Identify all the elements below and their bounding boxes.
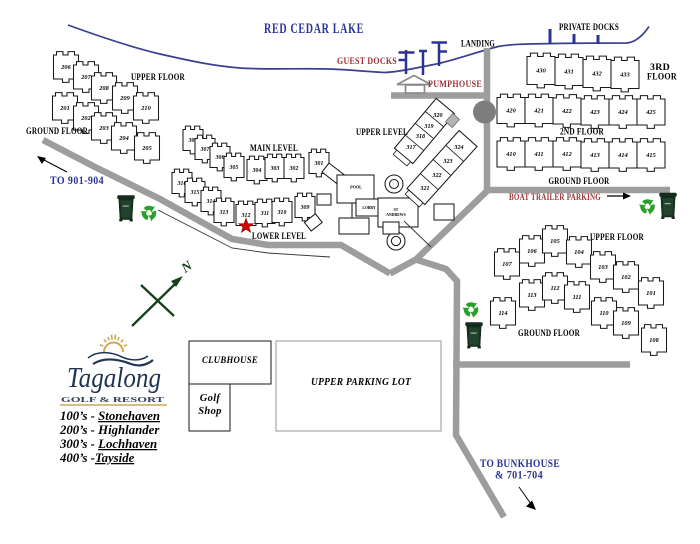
svg-text:GUEST DOCKS: GUEST DOCKS xyxy=(337,57,397,67)
svg-text:BOAT TRAILER PARKING: BOAT TRAILER PARKING xyxy=(509,193,601,203)
svg-text:GROUND FLOOR: GROUND FLOOR xyxy=(549,176,610,186)
svg-text:202: 202 xyxy=(80,115,90,122)
svg-text:317: 317 xyxy=(405,145,416,151)
svg-text:210: 210 xyxy=(140,105,151,112)
svg-text:301: 301 xyxy=(314,161,324,167)
svg-text:315: 315 xyxy=(190,190,200,196)
svg-text:103: 103 xyxy=(598,264,607,271)
svg-text:300’s - Lochhaven: 300’s - Lochhaven xyxy=(59,437,157,451)
svg-text:UPPER FLOOR: UPPER FLOOR xyxy=(131,72,185,82)
svg-text:2ND FLOOR: 2ND FLOOR xyxy=(560,127,604,137)
svg-text:425: 425 xyxy=(645,109,655,116)
svg-text:304: 304 xyxy=(252,168,262,174)
svg-text:UPPER FLOOR: UPPER FLOOR xyxy=(590,232,644,242)
svg-text:412: 412 xyxy=(561,151,571,158)
svg-text:323: 323 xyxy=(442,159,452,165)
svg-text:PRIVATE DOCKS: PRIVATE DOCKS xyxy=(559,23,619,33)
svg-text:422: 422 xyxy=(561,108,571,115)
svg-text:324: 324 xyxy=(453,145,463,151)
svg-text:ANDREWS: ANDREWS xyxy=(386,213,405,217)
svg-text:205: 205 xyxy=(141,145,151,152)
svg-text:POOL: POOL xyxy=(350,185,362,190)
svg-text:411: 411 xyxy=(533,151,543,158)
svg-text:431: 431 xyxy=(563,69,573,76)
svg-text:423: 423 xyxy=(589,109,599,116)
svg-text:RED CEDAR LAKE: RED CEDAR LAKE xyxy=(264,21,364,37)
svg-text:Golf: Golf xyxy=(200,393,222,404)
svg-text:321: 321 xyxy=(419,186,429,192)
svg-text:112: 112 xyxy=(550,285,559,292)
svg-text:GROUND FLOOR: GROUND FLOOR xyxy=(26,126,88,136)
svg-text:PUMPHOUSE: PUMPHOUSE xyxy=(428,80,482,90)
svg-text:200’s - Highlander: 200’s - Highlander xyxy=(59,423,160,437)
svg-text:414: 414 xyxy=(617,152,627,159)
svg-text:Tagalong: Tagalong xyxy=(67,363,161,394)
svg-text:113: 113 xyxy=(527,292,536,299)
svg-text:207: 207 xyxy=(80,74,91,81)
svg-text:309: 309 xyxy=(300,205,310,211)
svg-text:312: 312 xyxy=(241,213,251,219)
svg-text:313: 313 xyxy=(219,210,229,216)
svg-text:LANDING: LANDING xyxy=(461,40,495,50)
svg-text:302: 302 xyxy=(289,166,299,172)
svg-text:106: 106 xyxy=(527,248,537,255)
svg-text:208: 208 xyxy=(98,85,109,92)
svg-text:201: 201 xyxy=(59,105,69,112)
svg-text:410: 410 xyxy=(505,151,516,158)
svg-text:ST: ST xyxy=(394,208,399,212)
svg-text:100’s - Stonehaven: 100’s - Stonehaven xyxy=(60,409,160,423)
svg-text:420: 420 xyxy=(505,108,516,115)
svg-text:433: 433 xyxy=(619,72,629,79)
svg-text:TO 901-904: TO 901-904 xyxy=(50,173,104,187)
svg-text:424: 424 xyxy=(617,109,627,116)
svg-text:109: 109 xyxy=(621,320,631,327)
svg-text:TO BUNKHOUSE: TO BUNKHOUSE xyxy=(480,458,560,470)
svg-text:3RD: 3RD xyxy=(650,62,670,72)
svg-text:307: 307 xyxy=(200,147,211,153)
svg-text:318: 318 xyxy=(415,134,425,140)
svg-text:114: 114 xyxy=(498,310,507,317)
svg-text:432: 432 xyxy=(591,71,601,78)
svg-text:108: 108 xyxy=(649,337,659,344)
svg-text:& 701-704: & 701-704 xyxy=(495,470,543,482)
svg-text:FLOOR: FLOOR xyxy=(647,72,677,82)
svg-text:305: 305 xyxy=(229,165,239,171)
svg-text:206: 206 xyxy=(60,64,71,71)
svg-text:104: 104 xyxy=(574,249,583,256)
svg-text:110: 110 xyxy=(599,310,609,317)
svg-text:303: 303 xyxy=(270,166,280,172)
svg-text:LOWER LEVEL: LOWER LEVEL xyxy=(252,231,306,241)
svg-text:204: 204 xyxy=(118,135,128,142)
svg-text:UPPER LEVEL: UPPER LEVEL xyxy=(356,127,408,137)
svg-text:105: 105 xyxy=(550,238,559,245)
svg-text:GROUND FLOOR: GROUND FLOOR xyxy=(518,328,580,338)
svg-text:UPPER PARKING LOT: UPPER PARKING LOT xyxy=(311,377,412,388)
svg-text:102: 102 xyxy=(621,274,630,281)
svg-text:322: 322 xyxy=(431,173,441,179)
svg-text:430: 430 xyxy=(535,68,546,75)
svg-text:MAIN LEVEL: MAIN LEVEL xyxy=(250,143,298,153)
svg-text:306: 306 xyxy=(215,155,225,161)
svg-text:400’s -Tayside: 400’s -Tayside xyxy=(59,451,135,465)
svg-text:203: 203 xyxy=(98,125,108,132)
svg-text:421: 421 xyxy=(533,108,543,115)
svg-text:CLUBHOUSE: CLUBHOUSE xyxy=(202,356,258,366)
svg-text:310: 310 xyxy=(277,210,287,216)
svg-text:415: 415 xyxy=(645,152,655,159)
svg-text:319: 319 xyxy=(423,124,433,130)
svg-text:413: 413 xyxy=(589,152,599,159)
svg-text:107: 107 xyxy=(502,261,512,268)
svg-text:101: 101 xyxy=(646,290,655,297)
svg-text:Shop: Shop xyxy=(198,406,221,417)
svg-text:209: 209 xyxy=(119,95,130,102)
svg-text:311: 311 xyxy=(260,211,269,217)
svg-text:GOLF & RESORT: GOLF & RESORT xyxy=(61,395,164,404)
svg-text:111: 111 xyxy=(573,294,582,301)
svg-text:320: 320 xyxy=(432,113,442,119)
svg-text:LOBBY: LOBBY xyxy=(362,206,376,210)
